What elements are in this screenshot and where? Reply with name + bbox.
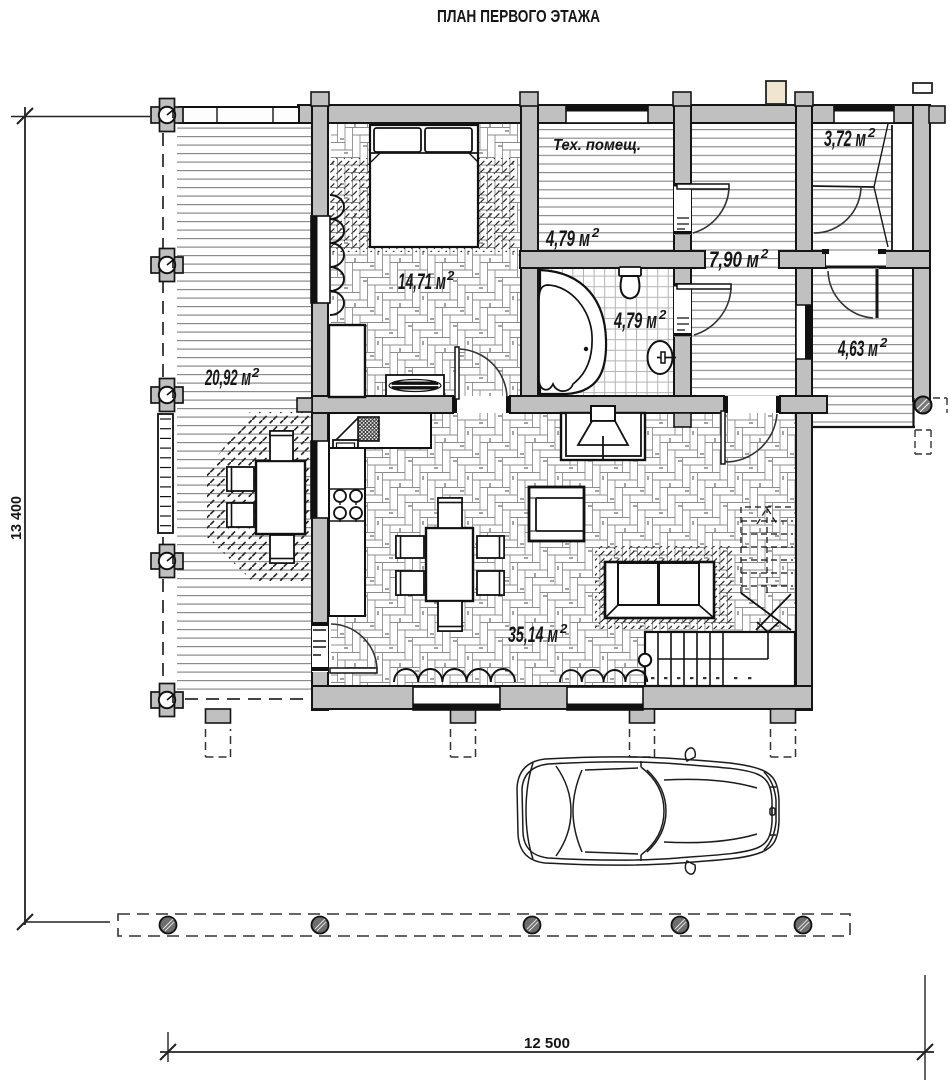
svg-text:7,90 м: 7,90 м xyxy=(709,247,759,272)
svg-text:4,63 м: 4,63 м xyxy=(837,336,878,361)
svg-text:2: 2 xyxy=(879,335,888,350)
svg-text:14,71 м: 14,71 м xyxy=(398,269,446,294)
svg-text:2: 2 xyxy=(760,246,769,261)
svg-text:4,79 м: 4,79 м xyxy=(613,308,657,333)
svg-text:2: 2 xyxy=(867,125,876,140)
svg-text:35,14 м: 35,14 м xyxy=(508,622,558,647)
svg-text:2: 2 xyxy=(559,621,568,636)
svg-text:4,79 м: 4,79 м xyxy=(545,226,590,251)
svg-text:2: 2 xyxy=(658,307,667,322)
svg-text:20,92 м: 20,92 м xyxy=(204,365,251,390)
svg-text:2: 2 xyxy=(591,225,600,240)
svg-text:12 500: 12 500 xyxy=(524,1035,570,1052)
svg-text:2: 2 xyxy=(251,365,260,380)
svg-text:2: 2 xyxy=(446,268,455,283)
svg-text:Тех. помещ.: Тех. помещ. xyxy=(553,137,641,154)
svg-text:3,72 м: 3,72 м xyxy=(824,126,866,151)
svg-text:13 400: 13 400 xyxy=(8,496,25,540)
svg-text:ПЛАН ПЕРВОГО ЭТАЖА: ПЛАН ПЕРВОГО ЭТАЖА xyxy=(437,6,600,26)
